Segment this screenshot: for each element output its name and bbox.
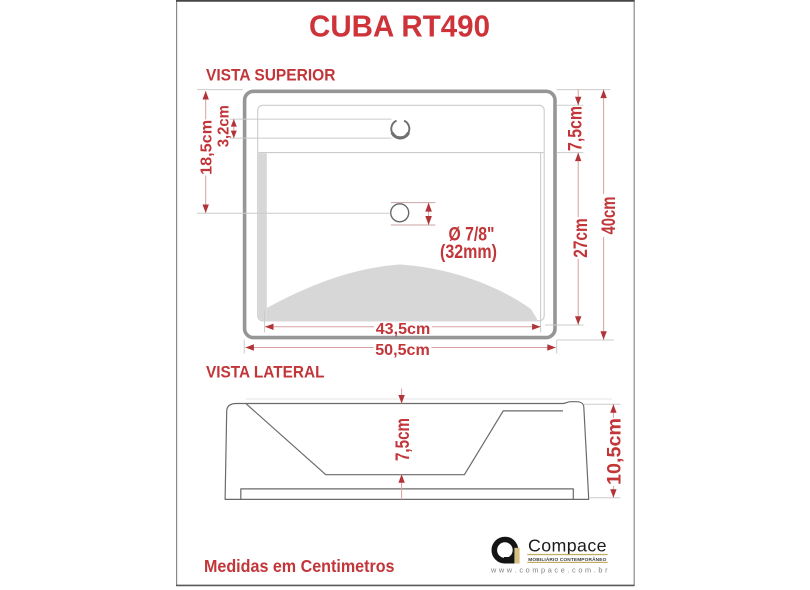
svg-text:Compace: Compace [528,535,607,555]
svg-text:CUBA RT490: CUBA RT490 [309,8,490,43]
svg-text:7,5cm: 7,5cm [393,418,414,461]
svg-text:Medidas em Centimetros: Medidas em Centimetros [204,556,395,576]
svg-text:MOBILIÁRIO CONTEMPORÂNEO: MOBILIÁRIO CONTEMPORÂNEO [528,556,606,563]
svg-text:18,5cm: 18,5cm [199,120,216,175]
svg-text:VISTA LATERAL: VISTA LATERAL [206,363,325,381]
svg-text:10,5cm: 10,5cm [605,418,626,485]
svg-text:43,5cm: 43,5cm [376,321,431,338]
svg-text:40cm: 40cm [599,197,620,235]
svg-text:(32mm): (32mm) [440,242,497,263]
svg-text:3,2cm: 3,2cm [215,105,232,147]
svg-text:VISTA SUPERIOR: VISTA SUPERIOR [206,66,336,84]
svg-text:50,5cm: 50,5cm [375,342,430,359]
svg-text:7,5cm: 7,5cm [566,106,587,151]
svg-text:w w w . c o m p a c e . c o m: w w w . c o m p a c e . c o m . b r [490,566,608,575]
svg-text:27cm: 27cm [571,218,592,258]
